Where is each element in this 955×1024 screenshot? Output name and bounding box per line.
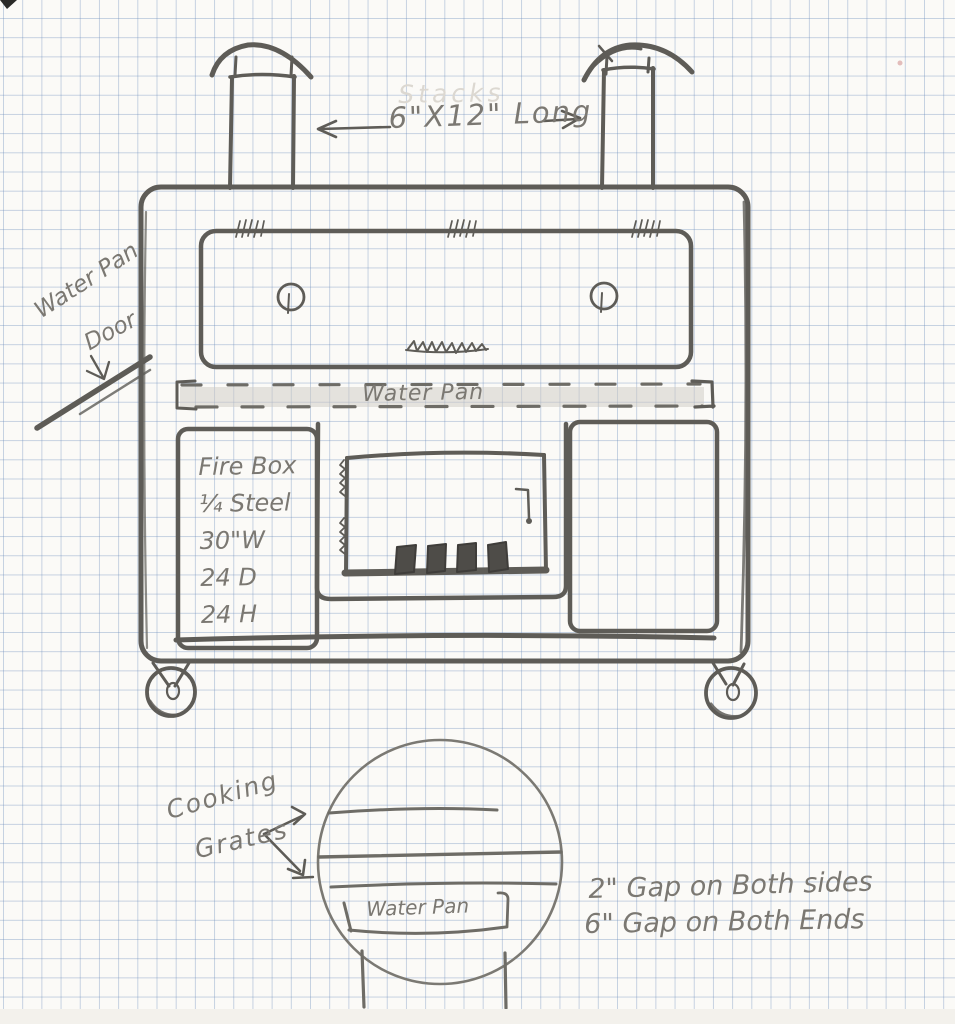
right-compartment-outline: [570, 422, 717, 631]
firebox-spec-line: ¼ Steel: [199, 484, 298, 523]
firebox-door: [340, 453, 546, 574]
middle-grate-line: [319, 852, 561, 857]
right-chimney-cap: [584, 45, 692, 80]
cs-water-pan-right: [498, 893, 508, 927]
body-inner-shelf-line: [176, 635, 714, 640]
upper-arrowhead: [292, 807, 305, 824]
door-hinge-right: [632, 220, 660, 237]
graph-paper-sheet: Stacks 6"X12" Long Water Pan Door Water …: [0, 0, 955, 1024]
gap-note-ends: 6" Gap on Both Ends: [584, 904, 865, 940]
door-hinge-left: [236, 220, 264, 237]
scan-corner-mark: [0, 0, 17, 9]
firebox-spec-line: 30"W: [199, 521, 298, 560]
water-pan-door-flap: [37, 356, 150, 428]
right-chimney: [584, 45, 692, 188]
water-pan-band-label: Water Pan: [362, 380, 484, 407]
door-handle-left: [278, 284, 304, 310]
left-chimney-cap: [212, 45, 311, 77]
cs-water-pan-bottom: [349, 927, 506, 933]
firebox-spec-block: Fire Box ¼ Steel 30"W 24 D 24 H: [198, 447, 299, 634]
left-wheel: [147, 668, 195, 716]
stack-dimension-label: 6"X12" Long: [388, 94, 593, 135]
cross-section: [318, 740, 562, 1008]
lower-grate-line: [331, 883, 556, 887]
door-handle-right: [591, 283, 617, 309]
firebox-spec-line: Fire Box: [198, 447, 297, 486]
firebox-door-handle: [516, 489, 529, 518]
right-wheel: [706, 668, 756, 718]
vent-1: [395, 545, 416, 574]
vent-4: [488, 542, 508, 572]
door-hinge-center: [448, 220, 476, 237]
left-wheel-hub: [167, 683, 179, 699]
vent-3: [457, 543, 476, 572]
firebox-spec-line: 24 D: [200, 558, 299, 597]
left-chimney: [212, 45, 311, 188]
firebox-hinge-top: [340, 460, 345, 496]
cs-water-pan-left: [344, 903, 351, 931]
right-leg: [505, 953, 506, 1008]
vent-2: [427, 544, 446, 573]
scan-bottom-edge: [0, 1009, 955, 1024]
cross-section-water-pan-label: Water Pan: [366, 893, 469, 921]
scan-red-speck: [898, 61, 903, 66]
left-leg: [362, 951, 364, 1007]
upper-grate-line: [329, 809, 497, 813]
firebox-spec-line: 24 H: [201, 595, 300, 634]
main-door: [201, 220, 691, 367]
wheels: [147, 663, 756, 718]
barrel-cross-section: [318, 740, 562, 984]
